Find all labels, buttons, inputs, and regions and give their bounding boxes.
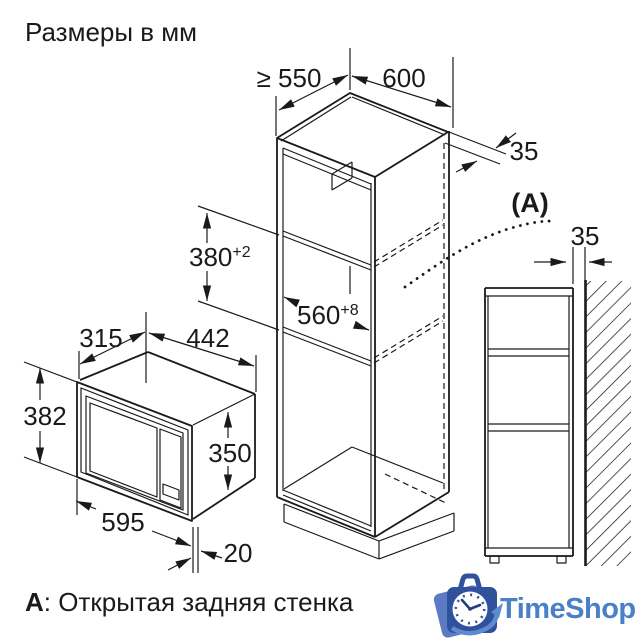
dim-niche-height-label: 380+2 bbox=[189, 242, 251, 272]
cabinet-plinth bbox=[284, 504, 454, 559]
dim-mw-overhang: 20 bbox=[168, 527, 252, 573]
section-reference: (A) bbox=[405, 188, 553, 287]
dim-top-reveal-label: 35 bbox=[510, 136, 539, 166]
dim-top-reveal: 35 bbox=[445, 132, 538, 172]
dim-cabinet-width-label: 600 bbox=[382, 63, 425, 93]
logo-text: TimeShop bbox=[500, 593, 636, 625]
hidden-shelf-edges bbox=[374, 220, 448, 504]
timeshop-logo: TimeShop bbox=[433, 576, 636, 639]
dim-niche-height: 380+2 bbox=[189, 206, 279, 330]
section-ref-label: (A) bbox=[511, 188, 548, 218]
microwave-display bbox=[163, 484, 179, 500]
side-section-view bbox=[485, 288, 573, 563]
dim-niche-width: 560+8 bbox=[284, 297, 369, 330]
wall-hatching bbox=[586, 281, 631, 566]
microwave-control-panel bbox=[160, 429, 181, 508]
dim-niche-width-label: 560+8 bbox=[297, 300, 359, 330]
microwave-door-window bbox=[90, 403, 157, 497]
dim-mw-width: 442 bbox=[149, 323, 256, 392]
dim-wall-gap-label: 35 bbox=[571, 221, 600, 251]
technical-drawing-canvas: Размеры в мм bbox=[0, 0, 636, 640]
section-ref-leader bbox=[405, 221, 553, 287]
dim-wall-gap: 35 bbox=[534, 221, 612, 284]
dim-mw-overhang-label: 20 bbox=[224, 538, 253, 568]
footnote: A: Открытая задняя стенка bbox=[25, 587, 354, 617]
dim-depth-min-label: ≥ 550 bbox=[257, 63, 322, 93]
microwave-front-frame bbox=[77, 382, 192, 521]
dim-mw-front-height-label: 382 bbox=[23, 401, 66, 431]
dim-mw-width-label: 442 bbox=[186, 323, 229, 353]
dim-mw-front-height: 382 bbox=[23, 362, 77, 477]
cabinet-leg bbox=[490, 556, 499, 563]
dim-mw-depth: 315 bbox=[79, 312, 146, 383]
cabinet-leg bbox=[557, 556, 566, 563]
dim-mw-body-height: 350 bbox=[208, 412, 251, 490]
dim-mw-body-height-label: 350 bbox=[208, 438, 251, 468]
clock-icon bbox=[453, 592, 488, 627]
dim-mw-depth-label: 315 bbox=[79, 323, 122, 353]
page-title: Размеры в мм bbox=[25, 17, 197, 47]
dim-mw-front-width: 595 bbox=[76, 479, 191, 546]
wall-section bbox=[586, 280, 632, 566]
shelf-front-edges bbox=[283, 231, 371, 531]
dimensions-diagram: Размеры в мм bbox=[0, 0, 636, 640]
dim-mw-front-width-label: 595 bbox=[101, 507, 144, 537]
